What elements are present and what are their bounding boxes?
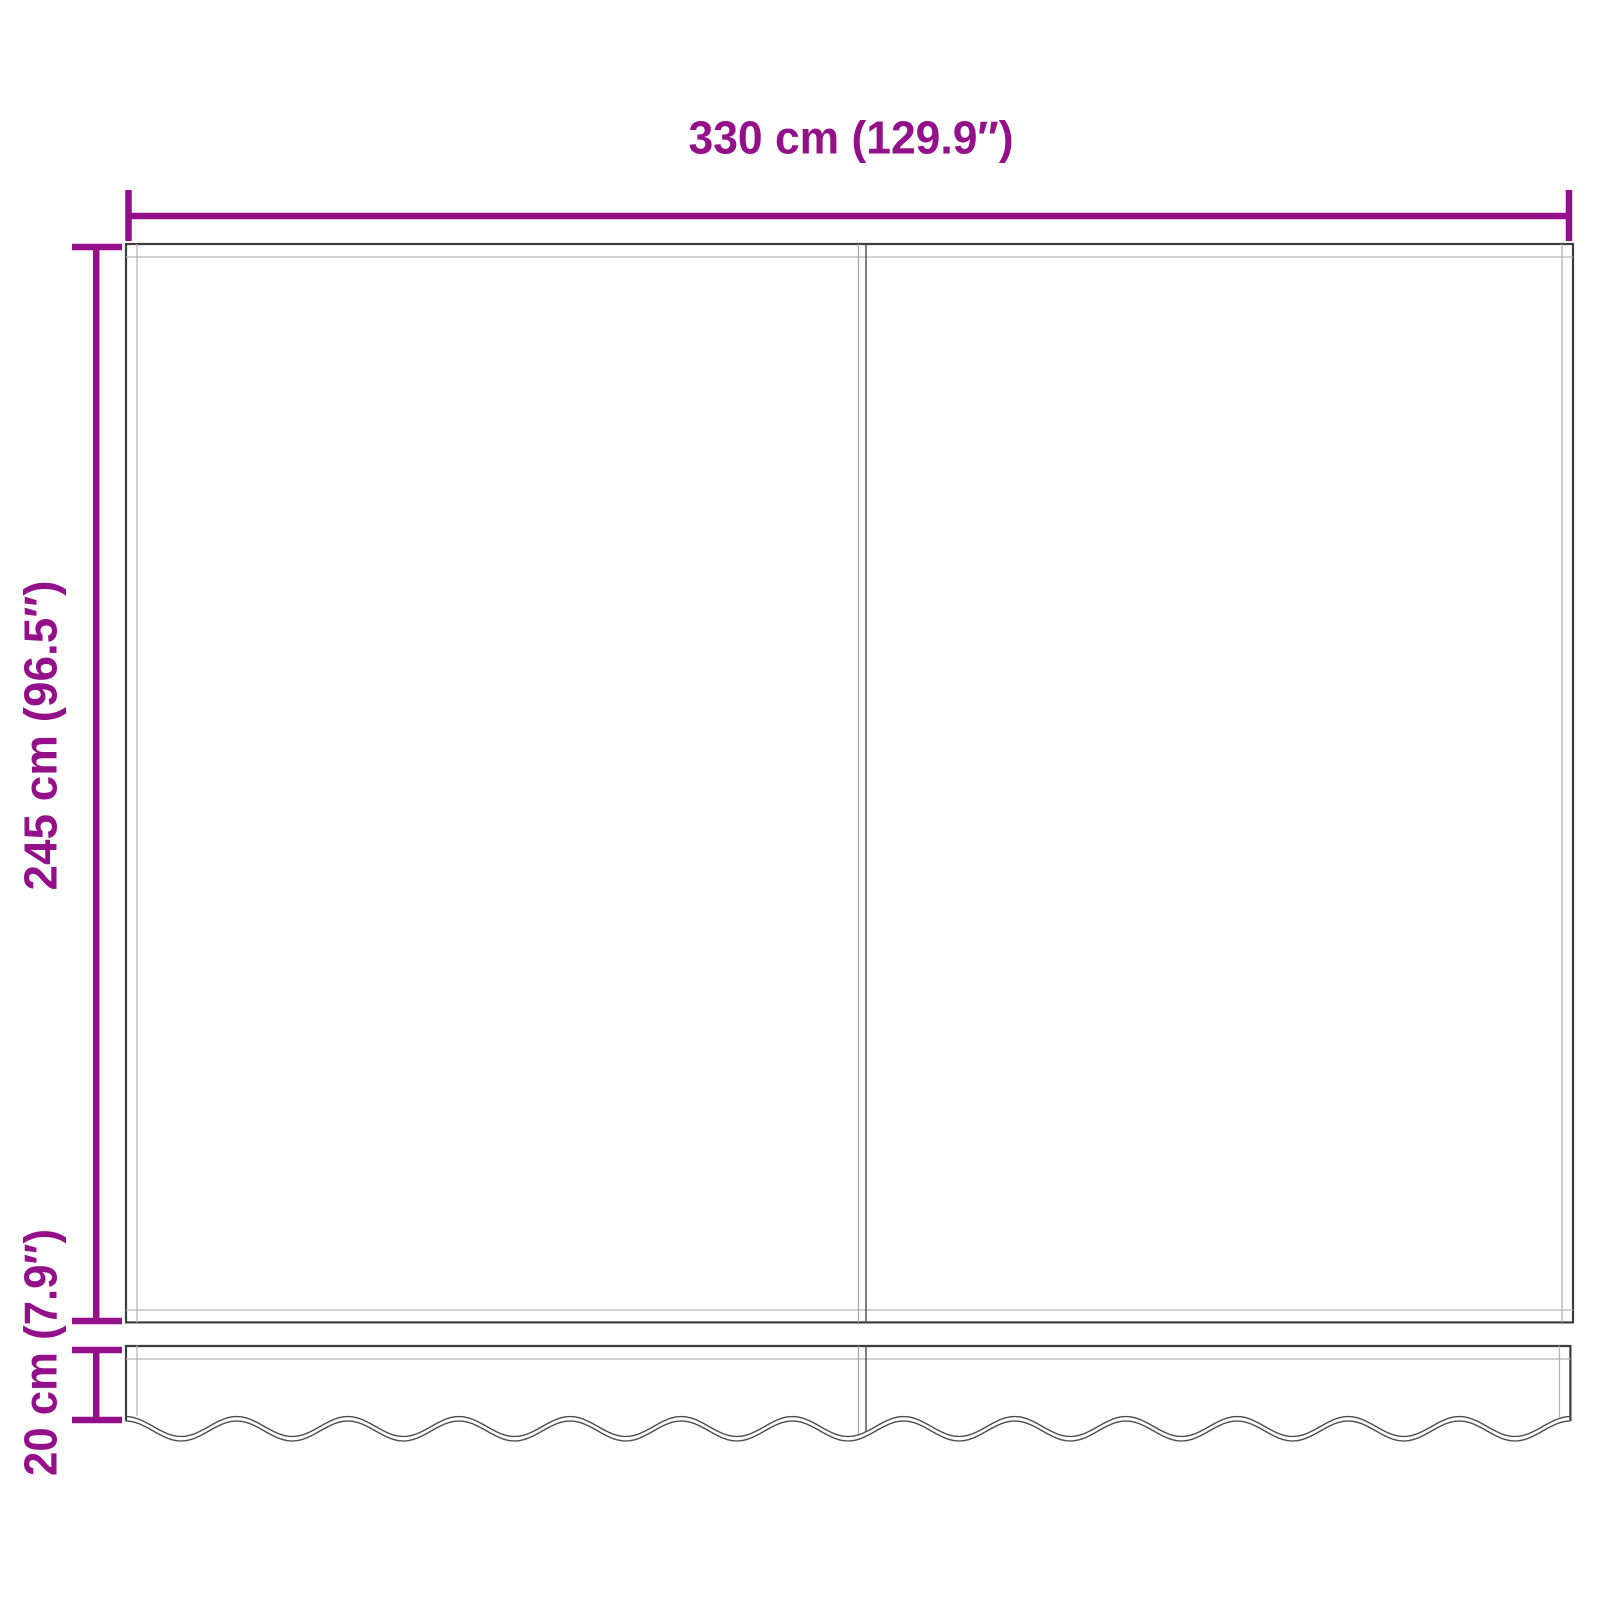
svg-text:330 cm (129.9″): 330 cm (129.9″) [689, 112, 1014, 164]
svg-text:20 cm (7.9″): 20 cm (7.9″) [15, 1229, 67, 1476]
svg-text:245 cm (96.5″): 245 cm (96.5″) [15, 581, 67, 891]
